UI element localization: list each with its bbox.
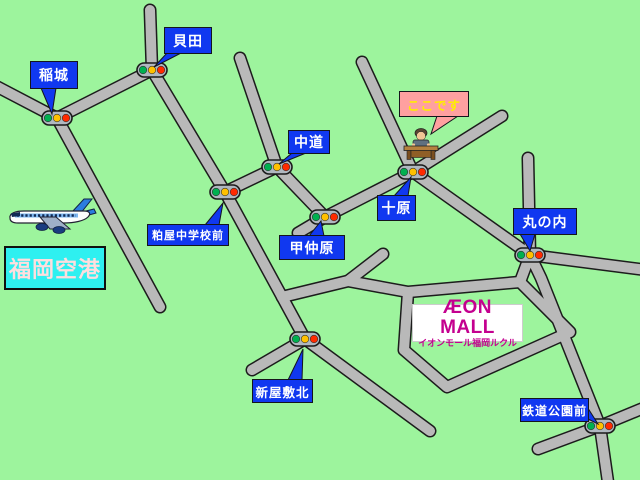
label-tail-kasuya-chugakko-mae: [205, 203, 223, 225]
road-kaida-kasuya: [152, 70, 225, 192]
traffic-light-icon-kasuya-chugakko-mae: [210, 185, 240, 199]
label-konakabaru: 甲仲原: [279, 235, 345, 260]
traffic-light-icon-kaida: [137, 63, 167, 77]
label-shinyashiki-kita: 新屋敷北: [252, 379, 313, 403]
map-canvas: 福岡空港 ÆON MALL イオンモール福岡ルクル 稲城貝田中道ここです十原甲仲…: [0, 0, 640, 480]
road-kaida-north: [150, 10, 152, 70]
aeon-mall-subtitle: イオンモール福岡ルクル: [418, 338, 517, 349]
airport-label-box: 福岡空港: [4, 246, 106, 290]
label-tetsudo-koen-mae: 鉄道公園前: [520, 398, 589, 422]
road-mall-access-stub: [348, 254, 383, 281]
label-kaida: 貝田: [164, 27, 212, 54]
airplane-icon: [6, 196, 98, 236]
label-kasuya-chugakko-mae: 粕屋中学校前: [147, 224, 229, 246]
traffic-light-icon-inagi: [42, 111, 72, 125]
traffic-light-icon-tetsudo-koen-mae: [585, 419, 615, 433]
label-tobaru: 十原: [377, 195, 416, 221]
airport-label: 福岡空港: [9, 252, 101, 284]
traffic-light-icon-konakabaru: [310, 210, 340, 224]
label-tail-nakamichi: [279, 153, 306, 164]
aeon-mall-logo: ÆON MALL: [413, 298, 522, 338]
person-at-desk-icon: [402, 126, 442, 160]
label-kokodesu: ここです: [399, 91, 469, 117]
traffic-light-icon-nakamichi: [262, 160, 292, 174]
label-marunouchi: 丸の内: [513, 208, 577, 235]
traffic-light-icon-tobaru: [398, 165, 428, 179]
road-nakamichi-north-deadend: [240, 58, 277, 167]
road-kasuya-shinyashiki: [225, 192, 305, 339]
label-nakamichi: 中道: [288, 130, 330, 154]
traffic-light-icon-shinyashiki-kita: [290, 332, 320, 346]
label-inagi: 稲城: [30, 61, 78, 89]
aeon-mall-logo-box: ÆON MALL イオンモール福岡ルクル: [412, 304, 523, 342]
